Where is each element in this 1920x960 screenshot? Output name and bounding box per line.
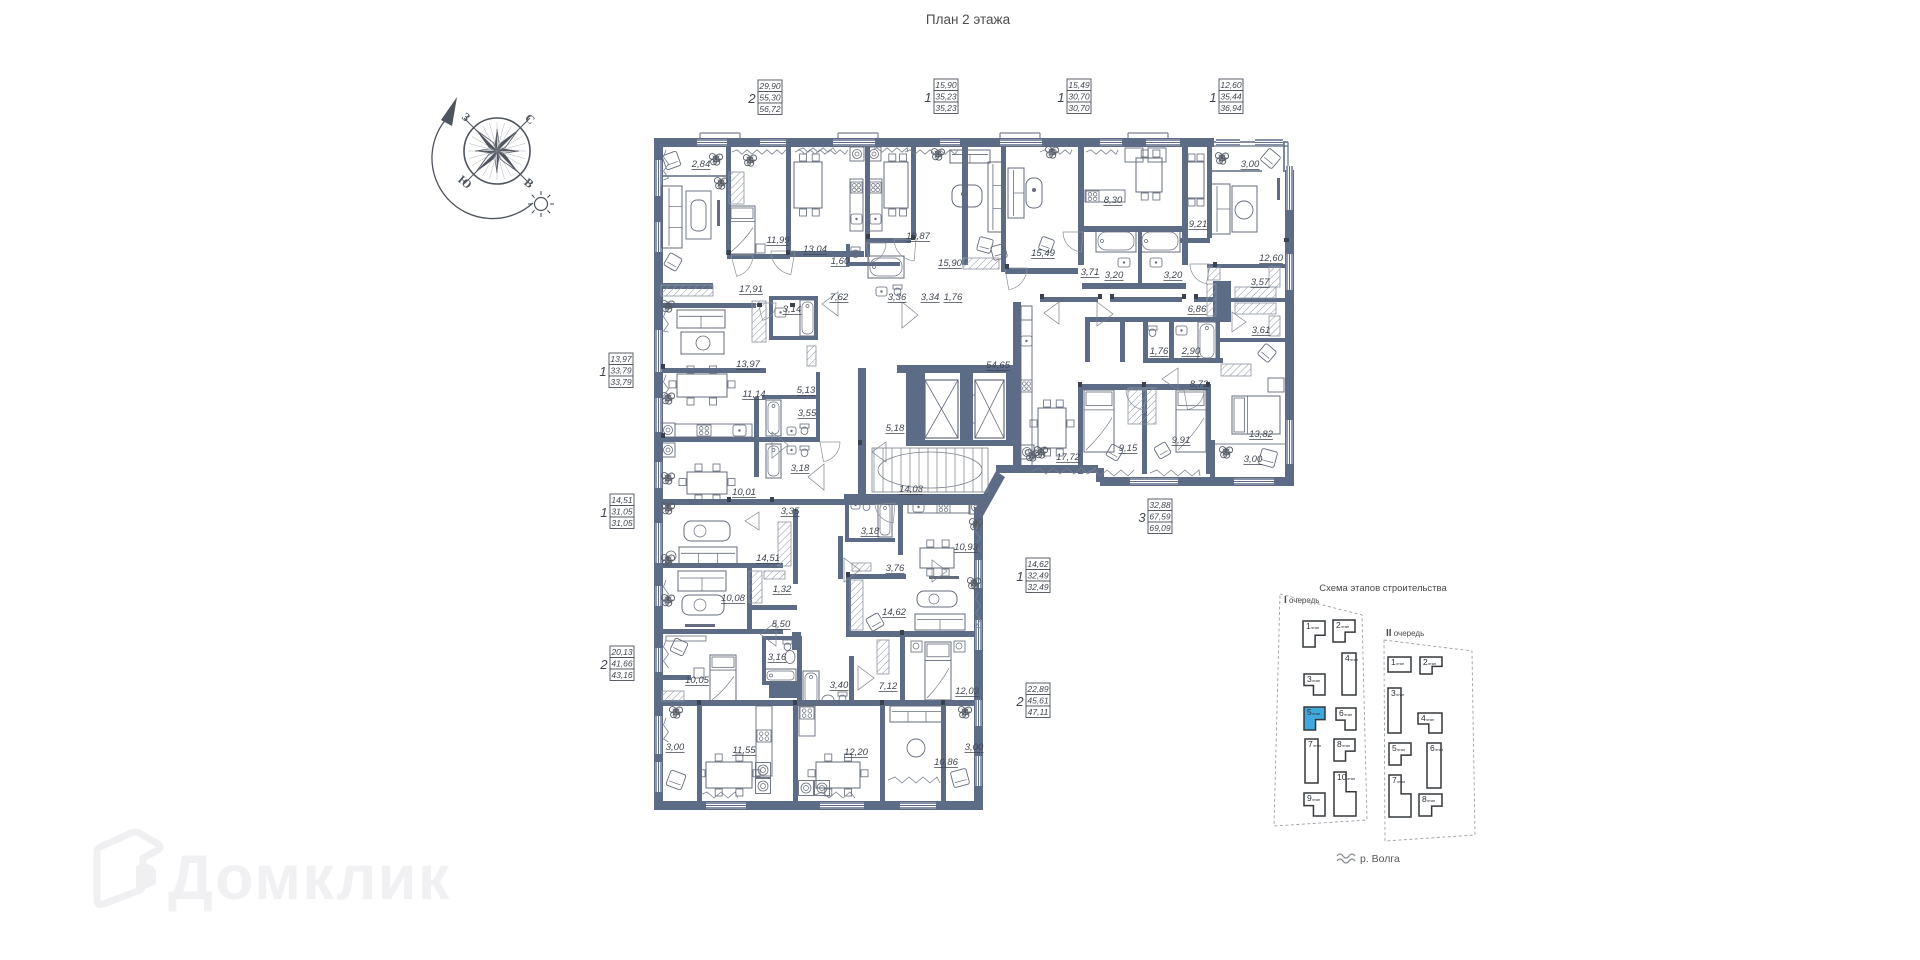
- svg-text:32,88: 32,88: [1149, 500, 1171, 510]
- svg-text:1,76: 1,76: [944, 292, 963, 303]
- svg-text:8,72: 8,72: [1190, 379, 1209, 390]
- svg-text:этап: этап: [1342, 743, 1350, 748]
- svg-text:3,00: 3,00: [1244, 454, 1263, 465]
- svg-text:56,72: 56,72: [759, 104, 781, 114]
- svg-text:этап: этап: [1347, 776, 1355, 781]
- svg-text:1: 1: [1016, 569, 1023, 584]
- svg-text:10,05: 10,05: [685, 675, 709, 686]
- svg-text:3,00: 3,00: [666, 742, 685, 753]
- svg-text:13,04: 13,04: [803, 244, 827, 255]
- svg-text:5,13: 5,13: [797, 385, 816, 396]
- svg-text:3,61: 3,61: [1252, 325, 1271, 336]
- svg-text:9,91: 9,91: [1172, 435, 1191, 446]
- svg-text:3,00: 3,00: [965, 742, 984, 753]
- svg-text:9,21: 9,21: [1189, 219, 1208, 230]
- svg-text:14,62: 14,62: [1027, 559, 1049, 569]
- svg-text:этап: этап: [1344, 712, 1352, 717]
- svg-text:1: 1: [1057, 90, 1064, 105]
- svg-text:2,84: 2,84: [691, 159, 711, 170]
- svg-text:3,00: 3,00: [1241, 159, 1260, 170]
- svg-text:36,94: 36,94: [1220, 103, 1242, 113]
- svg-text:54,65: 54,65: [986, 360, 1010, 371]
- svg-text:14,51: 14,51: [611, 495, 633, 505]
- svg-text:2: 2: [747, 91, 756, 106]
- svg-text:15,90: 15,90: [935, 80, 957, 90]
- svg-text:этап: этап: [1312, 711, 1320, 716]
- svg-text:45,61: 45,61: [1027, 696, 1049, 706]
- svg-text:12,03: 12,03: [955, 686, 979, 697]
- svg-text:33,79: 33,79: [610, 377, 632, 387]
- svg-text:69,09: 69,09: [1149, 523, 1171, 533]
- svg-text:67,59: 67,59: [1149, 512, 1171, 522]
- svg-text:2: 2: [599, 657, 608, 672]
- svg-text:3,35: 3,35: [781, 506, 800, 517]
- svg-text:1: 1: [600, 505, 607, 520]
- svg-text:I очередь: I очередь: [1284, 595, 1319, 606]
- svg-text:10,86: 10,86: [934, 757, 958, 768]
- svg-text:11,99: 11,99: [766, 235, 790, 246]
- svg-text:11,14: 11,14: [742, 389, 765, 400]
- svg-text:5,50: 5,50: [772, 619, 791, 630]
- svg-text:План 2 этажа: План 2 этажа: [926, 12, 1011, 27]
- svg-text:3: 3: [1138, 510, 1146, 525]
- svg-text:5,18: 5,18: [886, 423, 905, 434]
- svg-text:43,16: 43,16: [611, 670, 633, 680]
- svg-text:10,08: 10,08: [721, 593, 745, 604]
- svg-text:7,12: 7,12: [879, 681, 898, 692]
- svg-text:15,90: 15,90: [938, 258, 962, 269]
- svg-text:10,87: 10,87: [906, 231, 930, 242]
- svg-text:15,49: 15,49: [1068, 80, 1090, 90]
- svg-text:3,36: 3,36: [888, 292, 907, 303]
- svg-text:3,20: 3,20: [1164, 270, 1183, 281]
- svg-text:3,76: 3,76: [886, 563, 905, 574]
- svg-text:Домклик: Домклик: [168, 843, 451, 913]
- svg-text:41,66: 41,66: [611, 659, 633, 669]
- svg-text:3,40: 3,40: [830, 680, 849, 691]
- svg-text:1,60: 1,60: [831, 256, 850, 267]
- svg-text:3,71: 3,71: [1081, 267, 1100, 278]
- svg-text:этап: этап: [1350, 657, 1358, 662]
- svg-text:12,60: 12,60: [1220, 80, 1242, 90]
- svg-text:13,82: 13,82: [1249, 429, 1273, 440]
- svg-text:14,03: 14,03: [899, 484, 923, 495]
- svg-text:12,20: 12,20: [844, 747, 868, 758]
- svg-text:II очередь: II очередь: [1386, 628, 1424, 639]
- svg-text:этап: этап: [1396, 661, 1404, 666]
- svg-text:14,51: 14,51: [756, 553, 780, 564]
- svg-text:этап: этап: [1396, 692, 1404, 697]
- svg-text:14,62: 14,62: [882, 607, 906, 618]
- svg-text:33,79: 33,79: [610, 366, 632, 376]
- svg-text:этап: этап: [1341, 624, 1349, 629]
- svg-text:этап: этап: [1397, 779, 1405, 784]
- svg-text:Схема этапов строительства: Схема этапов строительства: [1319, 583, 1447, 594]
- svg-text:этап: этап: [1312, 678, 1320, 683]
- svg-text:1: 1: [1209, 90, 1216, 105]
- svg-text:32,49: 32,49: [1027, 582, 1049, 592]
- svg-text:31,05: 31,05: [611, 507, 633, 517]
- svg-text:1,76: 1,76: [1150, 346, 1169, 357]
- svg-text:35,44: 35,44: [1220, 92, 1242, 102]
- svg-text:3,18: 3,18: [791, 463, 810, 474]
- svg-text:6,86: 6,86: [1188, 304, 1207, 315]
- svg-text:30,70: 30,70: [1068, 92, 1090, 102]
- svg-text:35,23: 35,23: [935, 92, 957, 102]
- svg-text:1,32: 1,32: [773, 584, 792, 595]
- svg-text:3,34: 3,34: [921, 292, 940, 303]
- svg-text:этап: этап: [1313, 743, 1321, 748]
- svg-text:29,90: 29,90: [758, 81, 781, 91]
- svg-text:22,89: 22,89: [1026, 684, 1049, 694]
- svg-text:этап: этап: [1428, 661, 1436, 666]
- svg-text:17,72: 17,72: [1056, 452, 1080, 463]
- svg-text:3,20: 3,20: [1105, 270, 1124, 281]
- svg-text:2: 2: [1015, 694, 1024, 709]
- svg-text:7,62: 7,62: [830, 292, 849, 303]
- svg-text:11,55: 11,55: [732, 745, 756, 756]
- svg-text:12,60: 12,60: [1259, 253, 1283, 264]
- svg-text:17,91: 17,91: [739, 284, 763, 295]
- svg-text:этап: этап: [1311, 625, 1319, 630]
- svg-text:этап: этап: [1397, 747, 1405, 752]
- svg-text:3,14: 3,14: [783, 304, 802, 315]
- svg-text:9,15: 9,15: [1119, 443, 1138, 454]
- svg-text:3,18: 3,18: [861, 526, 880, 537]
- svg-text:этап: этап: [1426, 717, 1434, 722]
- svg-text:31,05: 31,05: [611, 518, 633, 528]
- svg-text:1: 1: [599, 364, 606, 379]
- svg-text:3,57: 3,57: [1251, 277, 1270, 288]
- svg-text:3,16: 3,16: [768, 652, 787, 663]
- svg-text:3,55: 3,55: [798, 408, 817, 419]
- svg-text:8,30: 8,30: [1104, 195, 1123, 206]
- svg-text:2,90: 2,90: [1181, 346, 1201, 357]
- svg-text:30,70: 30,70: [1068, 103, 1090, 113]
- svg-text:р. Волга: р. Волга: [1360, 853, 1400, 865]
- svg-text:15,49: 15,49: [1031, 248, 1055, 259]
- svg-text:32,49: 32,49: [1027, 571, 1049, 581]
- svg-text:этап: этап: [1435, 747, 1443, 752]
- svg-text:13,97: 13,97: [736, 359, 760, 370]
- svg-text:20,13: 20,13: [610, 647, 633, 657]
- svg-text:10: 10: [1337, 772, 1347, 782]
- svg-text:10,93: 10,93: [954, 542, 978, 553]
- svg-text:этап: этап: [1427, 798, 1435, 803]
- svg-text:этап: этап: [1312, 797, 1320, 802]
- svg-text:55,30: 55,30: [759, 93, 781, 103]
- svg-text:13,97: 13,97: [610, 354, 632, 364]
- svg-text:1: 1: [924, 90, 931, 105]
- svg-text:35,23: 35,23: [935, 103, 957, 113]
- svg-text:10,01: 10,01: [732, 487, 756, 498]
- svg-text:47,11: 47,11: [1028, 707, 1049, 717]
